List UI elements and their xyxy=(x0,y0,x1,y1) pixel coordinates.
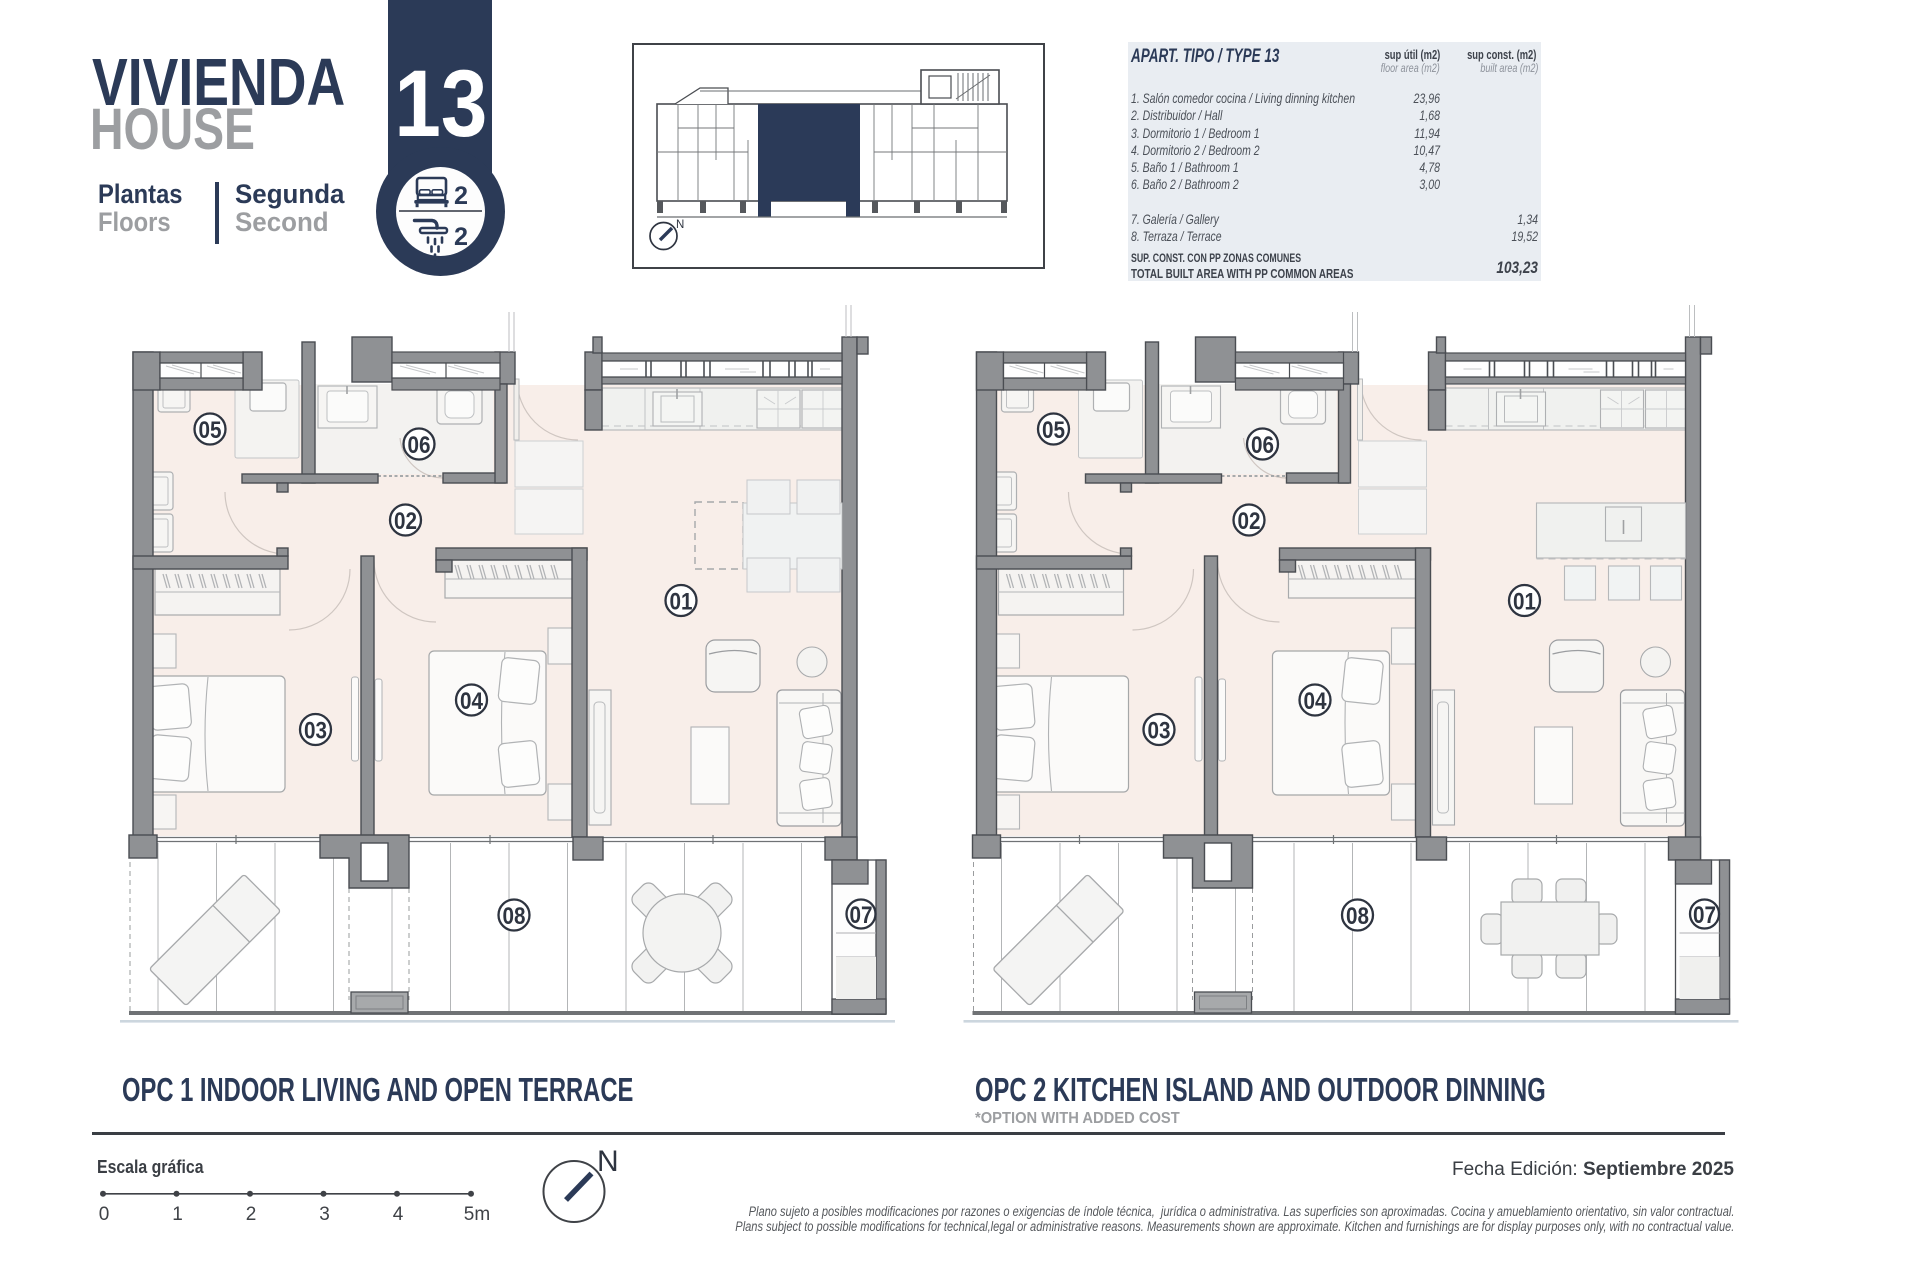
svg-text:04: 04 xyxy=(460,688,483,715)
svg-text:N: N xyxy=(597,1145,619,1178)
svg-text:4: 4 xyxy=(393,1204,404,1225)
svg-text:01: 01 xyxy=(670,589,693,616)
svg-text:06: 06 xyxy=(408,432,431,459)
svg-text:04: 04 xyxy=(1304,688,1327,715)
svg-text:08: 08 xyxy=(1346,903,1369,930)
svg-text:03: 03 xyxy=(1148,718,1171,745)
svg-text:08: 08 xyxy=(503,903,526,930)
svg-text:05: 05 xyxy=(1042,417,1065,444)
svg-text:N: N xyxy=(676,219,684,231)
svg-text:01: 01 xyxy=(1513,589,1536,616)
svg-text:02: 02 xyxy=(1238,508,1261,535)
svg-text:02: 02 xyxy=(394,508,417,535)
svg-text:03: 03 xyxy=(304,718,327,745)
svg-text:2: 2 xyxy=(454,182,468,210)
svg-text:07: 07 xyxy=(850,902,873,929)
svg-text:1: 1 xyxy=(172,1204,183,1225)
svg-text:2: 2 xyxy=(246,1204,257,1225)
svg-text:07: 07 xyxy=(1693,902,1716,929)
svg-text:06: 06 xyxy=(1251,432,1274,459)
svg-text:2: 2 xyxy=(454,223,468,251)
svg-text:05: 05 xyxy=(199,417,222,444)
svg-text:0: 0 xyxy=(99,1204,110,1225)
svg-text:3: 3 xyxy=(319,1204,330,1225)
svg-text:5m: 5m xyxy=(464,1204,490,1225)
